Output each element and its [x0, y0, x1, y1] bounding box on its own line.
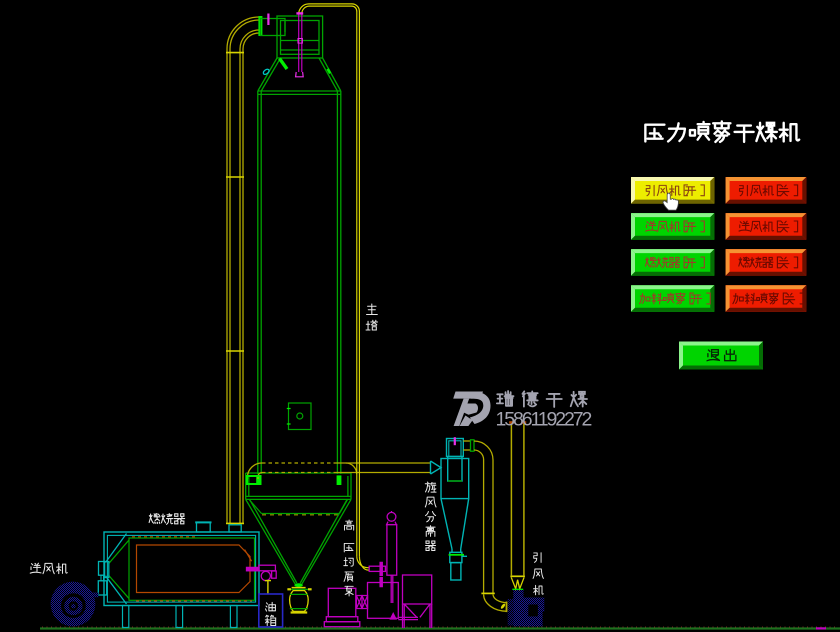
svg-text:15861192272: 15861192272: [496, 409, 592, 431]
